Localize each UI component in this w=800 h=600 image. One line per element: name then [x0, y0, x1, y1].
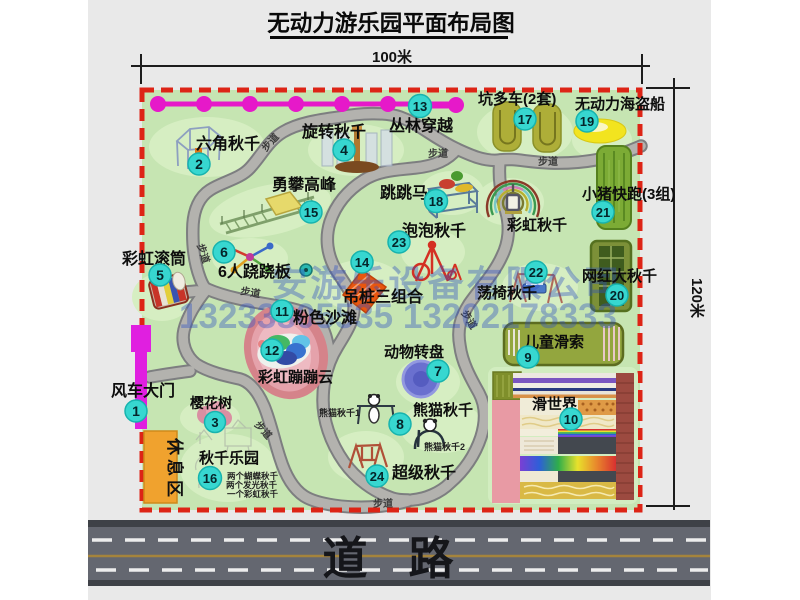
svg-text:休息区: 休息区: [165, 437, 185, 501]
svg-text:5: 5: [156, 267, 164, 283]
svg-text:21: 21: [596, 205, 610, 220]
svg-text:18: 18: [429, 194, 443, 209]
svg-text:旋转秋千: 旋转秋千: [301, 122, 366, 141]
svg-text:荡椅秋千: 荡椅秋千: [477, 284, 537, 302]
svg-text:小猪快跑(3组): 小猪快跑(3组): [582, 185, 675, 203]
svg-text:丛林穿越: 丛林穿越: [389, 116, 454, 135]
svg-text:一个彩虹秋千: 一个彩虹秋千: [227, 489, 279, 499]
svg-text:动物转盘: 动物转盘: [384, 343, 444, 361]
svg-text:7: 7: [434, 363, 442, 379]
svg-text:120米: 120米: [688, 278, 706, 319]
svg-text:4: 4: [340, 142, 348, 158]
svg-text:熊猫秋千2: 熊猫秋千2: [424, 441, 465, 452]
svg-text:19: 19: [580, 114, 594, 129]
svg-text:彩虹滚筒: 彩虹滚筒: [121, 249, 186, 268]
svg-text:无动力游乐园平面布局图: 无动力游乐园平面布局图: [267, 10, 515, 36]
svg-text:13: 13: [413, 99, 427, 114]
svg-text:路: 路: [408, 533, 454, 584]
svg-text:粉色沙滩: 粉色沙滩: [293, 308, 357, 327]
svg-text:吊桩三组合: 吊桩三组合: [343, 287, 424, 306]
svg-text:泡泡秋千: 泡泡秋千: [402, 221, 466, 240]
svg-text:11: 11: [275, 304, 289, 319]
svg-text:彩虹秋千: 彩虹秋千: [506, 216, 567, 234]
svg-text:100米: 100米: [372, 48, 413, 66]
svg-text:秋千乐园: 秋千乐园: [199, 449, 259, 467]
svg-text:彩虹蹦蹦云: 彩虹蹦蹦云: [257, 368, 333, 386]
svg-text:8: 8: [396, 416, 404, 432]
svg-text:24: 24: [370, 469, 385, 484]
svg-text:20: 20: [610, 288, 624, 303]
svg-text:15: 15: [304, 205, 318, 220]
svg-text:超级秋千: 超级秋千: [391, 463, 456, 482]
svg-text:12: 12: [265, 343, 279, 358]
svg-text:10: 10: [564, 412, 578, 427]
svg-text:熊猫秋千: 熊猫秋千: [413, 401, 473, 419]
svg-text:17: 17: [518, 112, 532, 127]
svg-text:14: 14: [355, 255, 370, 270]
svg-text:2: 2: [195, 156, 203, 172]
svg-text:6人跷跷板: 6人跷跷板: [218, 262, 292, 281]
svg-text:23: 23: [392, 235, 406, 250]
svg-text:16: 16: [203, 471, 217, 486]
svg-text:道: 道: [322, 533, 367, 584]
svg-text:22: 22: [529, 265, 543, 280]
svg-text:熊猫秋千1: 熊猫秋千1: [319, 407, 360, 418]
svg-text:步道: 步道: [538, 155, 558, 168]
svg-text:坑多车(2套): 坑多车(2套): [478, 90, 556, 108]
svg-text:3: 3: [211, 415, 218, 430]
svg-text:步道: 步道: [428, 147, 448, 160]
svg-text:网红大秋千: 网红大秋千: [582, 267, 657, 285]
svg-text:9: 9: [524, 350, 531, 365]
svg-text:风车大门: 风车大门: [111, 381, 175, 400]
svg-text:1: 1: [132, 403, 140, 419]
svg-text:6: 6: [220, 244, 228, 260]
svg-text:樱花树: 樱花树: [190, 395, 232, 411]
svg-text:六角秋千: 六角秋千: [196, 134, 260, 153]
svg-text:勇攀高峰: 勇攀高峰: [272, 175, 337, 194]
svg-text:跳跳马: 跳跳马: [380, 183, 428, 202]
